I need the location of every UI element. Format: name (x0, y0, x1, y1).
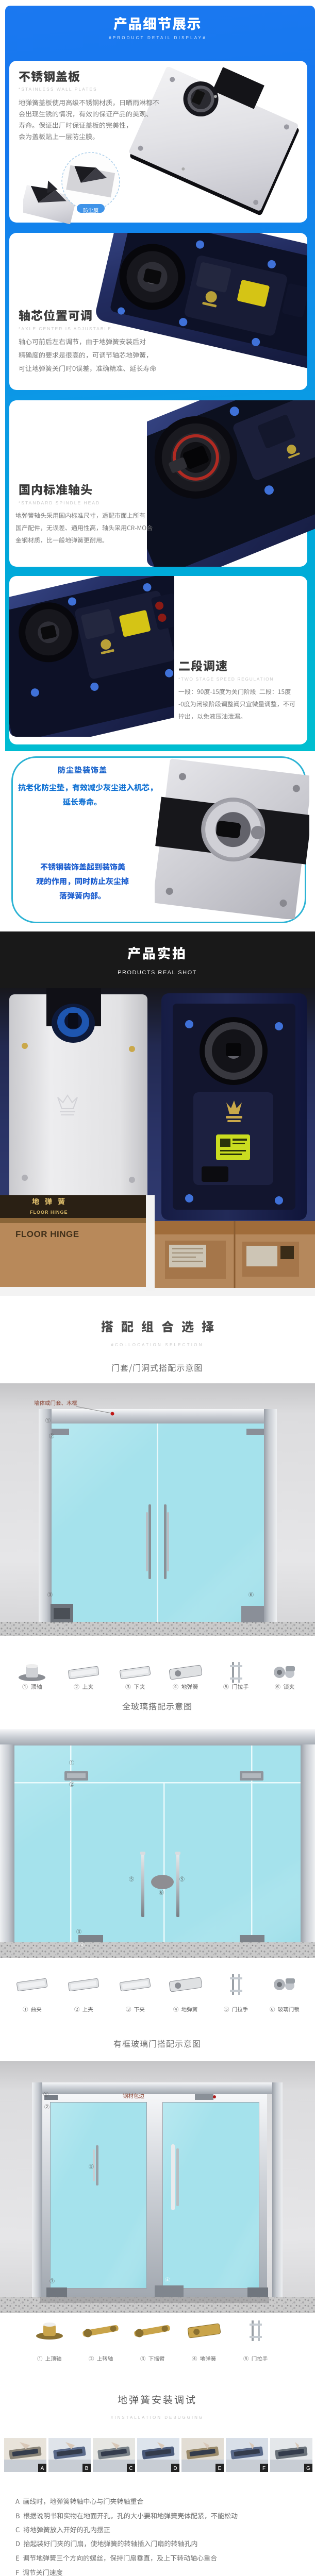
svg-text:D: D (173, 2466, 177, 2471)
svg-text:A: A (41, 2466, 44, 2471)
svg-text:C: C (129, 2466, 132, 2471)
svg-text:B: B (85, 2466, 89, 2471)
svg-text:G: G (306, 2466, 310, 2471)
svg-text:F: F (262, 2466, 266, 2471)
svg-text:E: E (218, 2466, 222, 2471)
